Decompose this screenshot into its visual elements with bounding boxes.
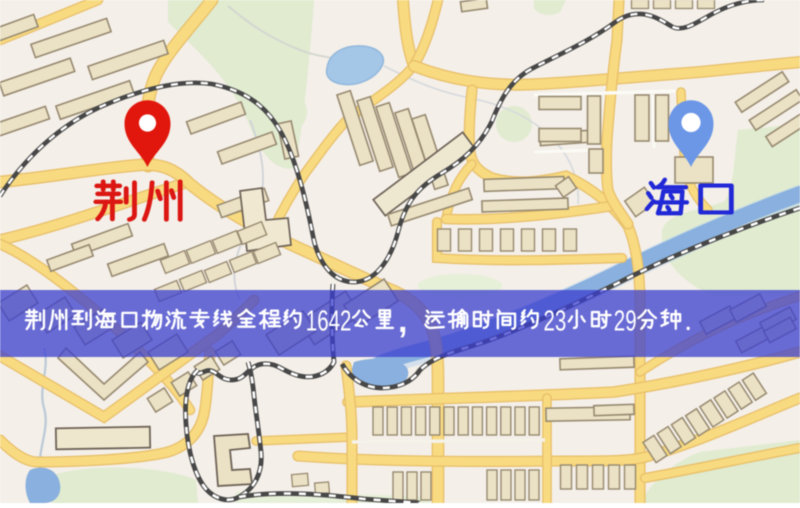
svg-text:1642: 1642 [306,306,352,337]
svg-text:23: 23 [544,306,567,337]
svg-text:29: 29 [614,306,637,337]
svg-text:.: . [684,304,692,337]
svg-text:,: , [398,302,407,340]
